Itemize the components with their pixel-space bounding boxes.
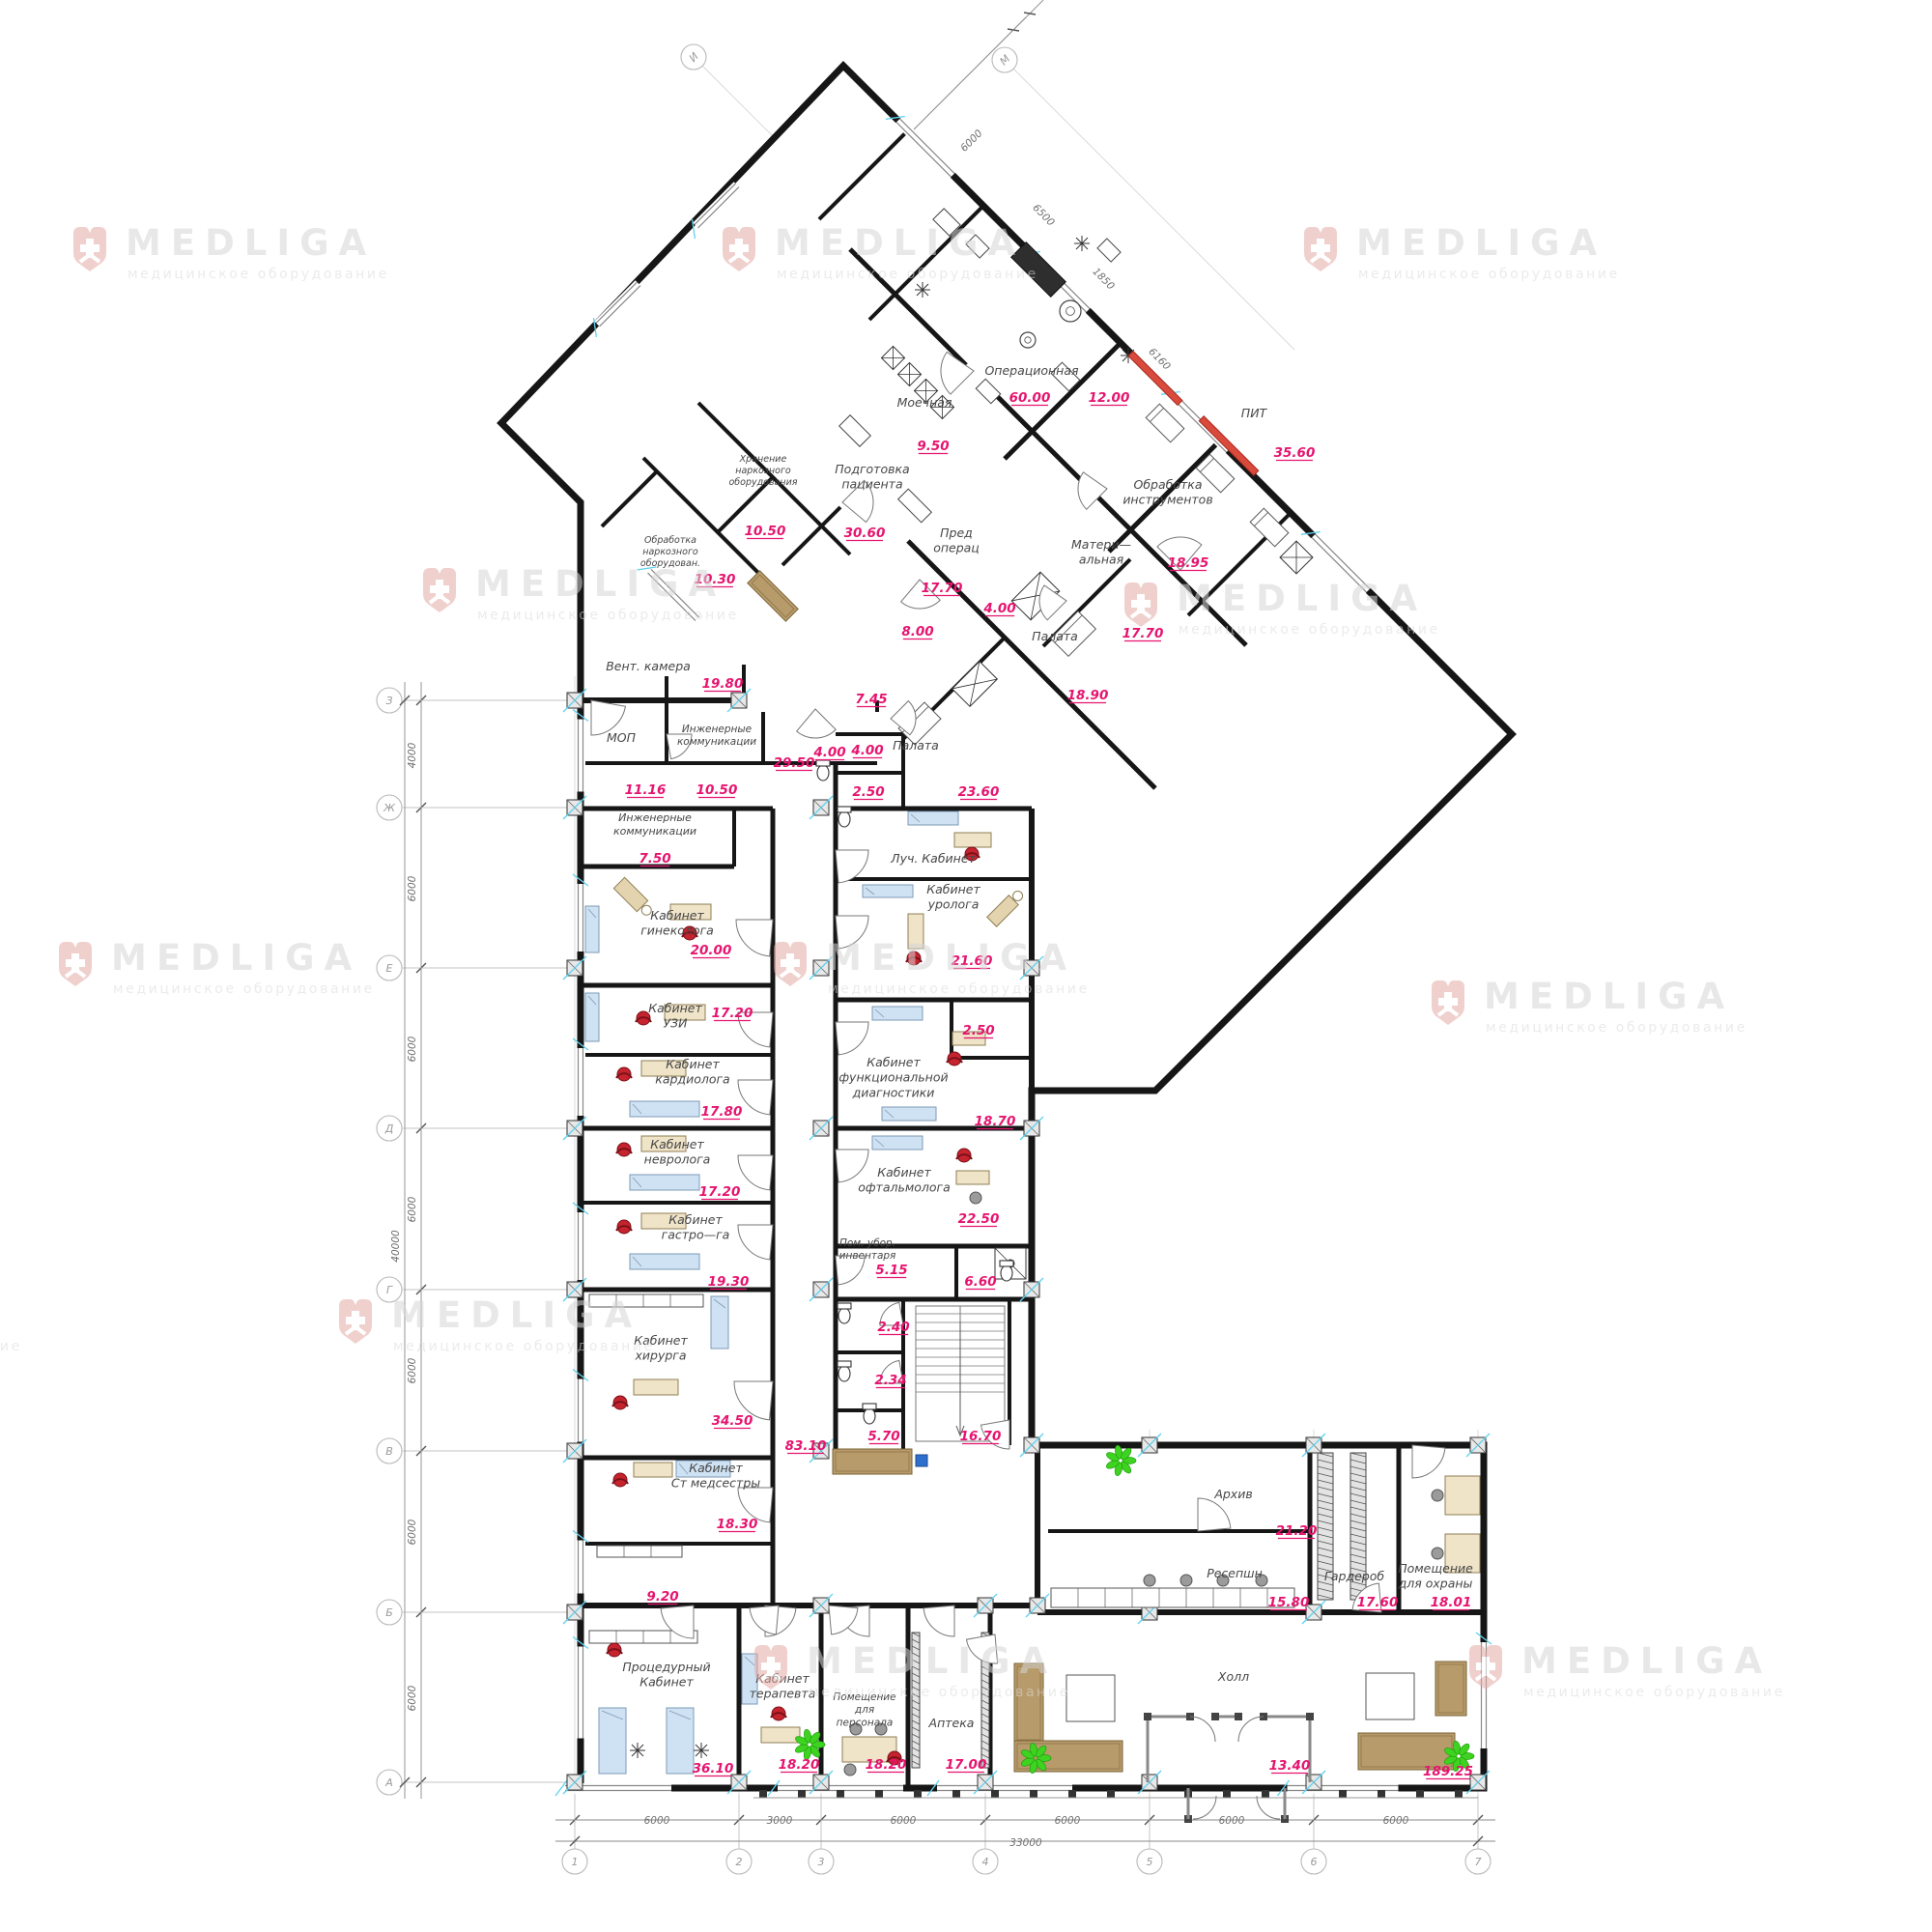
furniture-chair [956, 1149, 972, 1162]
room-area-value: 10.50 [745, 524, 786, 539]
svg-text:13.40: 13.40 [1269, 1758, 1311, 1774]
svg-text:17.70: 17.70 [1122, 626, 1164, 641]
room-area-value: 2.40 [877, 1320, 909, 1335]
furniture-counter [1051, 1588, 1294, 1607]
svg-text:7.50: 7.50 [639, 851, 670, 867]
column-pillar [563, 689, 586, 712]
svg-text:18.20: 18.20 [866, 1757, 907, 1773]
room-area-value: 11.16 [625, 782, 667, 798]
svg-text:17.70: 17.70 [922, 581, 963, 596]
furniture-couch [599, 1708, 626, 1774]
medliga-watermark: MEDLIGAмедицинское оборудование [0, 1294, 22, 1354]
room-label: Вент. камера [606, 659, 691, 673]
room-area-value: 4.00 [850, 743, 883, 758]
svg-text:17.80: 17.80 [701, 1104, 743, 1120]
room-label: Кабинетгастро—га [662, 1212, 730, 1242]
brand-name: MEDLIGA [391, 1294, 641, 1336]
svg-text:Д: Д [384, 1122, 394, 1135]
column-pillar [810, 796, 833, 819]
svg-text:34.50: 34.50 [712, 1413, 753, 1429]
furniture-couch [630, 1254, 699, 1269]
furniture-chair [612, 1396, 628, 1409]
dim-label: 40000 [390, 1230, 402, 1263]
brand-tagline: медицинское оборудование [1486, 1020, 1747, 1036]
dim-label: 33000 [1009, 1837, 1042, 1849]
dim-label: 6000 [407, 1036, 418, 1062]
porch-post [1455, 1790, 1463, 1798]
svg-text:9.50: 9.50 [917, 439, 949, 454]
furniture-table [1066, 1675, 1115, 1721]
svg-text:9.20: 9.20 [646, 1589, 678, 1605]
room-area-value: 30.60 [844, 526, 886, 541]
furniture-couch [711, 1296, 728, 1349]
medliga-watermark: MEDLIGAмедицинское оборудование [1432, 976, 1747, 1036]
svg-text:5.15: 5.15 [875, 1263, 907, 1278]
svg-text:А: А [384, 1776, 393, 1789]
room-area-value: 10.50 [696, 782, 738, 798]
medliga-watermark: MEDLIGAмедицинское оборудование [423, 563, 739, 623]
axis-circle-col-5: 5 [1137, 1849, 1162, 1874]
axis-circle-row-Ж: Ж [377, 795, 402, 820]
room-area-value: 7.50 [639, 851, 670, 867]
brand-name: MEDLIGA [1177, 578, 1427, 619]
svg-text:Матери—альная: Матери—альная [1071, 537, 1131, 567]
porch-post [1107, 1790, 1115, 1798]
brand-name: MEDLIGA [475, 563, 725, 605]
svg-text:5.70: 5.70 [867, 1429, 899, 1444]
furniture-desk [634, 1379, 678, 1395]
column-pillar [563, 1117, 586, 1140]
brand-tagline: медицинское оборудование [393, 1339, 655, 1354]
medliga-watermark: MEDLIGAмедицинское оборудование [1304, 222, 1620, 282]
room-area-value: 17.80 [701, 1104, 743, 1120]
dim-label: 6000 [891, 1815, 917, 1827]
furniture-desk [761, 1727, 800, 1743]
axis-circle-diag-М: М [992, 47, 1017, 72]
column-pillar [563, 1601, 586, 1624]
axis-circle-col-4: 4 [973, 1849, 998, 1874]
svg-text:5: 5 [1147, 1856, 1153, 1868]
svg-text:Кабинетгастро—га: Кабинетгастро—га [662, 1212, 730, 1242]
column-pillar [1138, 1771, 1161, 1794]
furniture-equip [1097, 239, 1121, 262]
svg-text:18.90: 18.90 [1067, 688, 1109, 703]
svg-text:Подготовкапациента: Подготовкапациента [835, 462, 909, 492]
brand-name: MEDLIGA [1356, 222, 1606, 264]
room-area-value: 189.25 [1423, 1764, 1473, 1779]
svg-text:Б: Б [385, 1606, 393, 1619]
axis-circle-col-2: 2 [726, 1849, 752, 1874]
room-label: Операционная [984, 363, 1079, 378]
room-label: Подготовкапациента [835, 462, 909, 492]
svg-text:189.25: 189.25 [1423, 1764, 1473, 1779]
room-area-value: 5.70 [867, 1429, 899, 1444]
room-area-value: 7.45 [855, 692, 887, 707]
room-area-value: 19.30 [708, 1274, 750, 1290]
room-area-value: 9.50 [917, 439, 949, 454]
svg-text:2.50: 2.50 [852, 784, 884, 800]
furniture-wc [838, 807, 851, 827]
room-area-value: 16.70 [960, 1429, 1002, 1444]
svg-text:36.10: 36.10 [693, 1761, 734, 1776]
room-area-value: 18.95 [1168, 555, 1209, 571]
room-area-value: 2.34 [874, 1373, 906, 1388]
axis-circle-row-З: З [377, 688, 402, 713]
column-pillar [810, 1771, 833, 1794]
room-area-value: 18.30 [717, 1517, 758, 1532]
dim-label: 6000 [407, 1685, 418, 1711]
column-pillar [974, 1594, 997, 1617]
room-label: ПИТ [1241, 406, 1268, 420]
svg-text:17.00: 17.00 [946, 1757, 987, 1773]
room-area-value: 12.00 [1089, 390, 1130, 406]
room-area-value: 20.00 [691, 943, 732, 958]
dim-label: 6000 [644, 1815, 670, 1827]
room-label: Аптека [928, 1716, 975, 1730]
svg-text:Кабинетуролога: Кабинетуролога [926, 882, 980, 912]
column-pillar [727, 689, 751, 712]
furniture-cross [1074, 236, 1090, 251]
dim-label: 6000 [1219, 1815, 1245, 1827]
dim-label: 6500 [1030, 202, 1057, 229]
svg-text:Инженерныекоммуникации: Инженерныекоммуникации [677, 724, 756, 748]
axis-circle-row-Б: Б [377, 1600, 402, 1625]
furniture-wc [863, 1404, 876, 1424]
svg-text:Кабинетневролога: Кабинетневролога [644, 1137, 711, 1167]
dim-label: 6000 [407, 1357, 418, 1383]
svg-text:20.00: 20.00 [691, 943, 732, 958]
dim-label: 6000 [958, 128, 985, 155]
column-pillar [563, 1439, 586, 1463]
furniture-wc [838, 1361, 851, 1381]
svg-text:3: 3 [818, 1856, 825, 1868]
svg-text:Пом. убор.инвентаря: Пом. убор.инвентаря [839, 1237, 896, 1262]
room-area-value: 35.60 [1274, 445, 1316, 461]
svg-text:Холл: Холл [1217, 1669, 1249, 1684]
column-pillar [1466, 1434, 1490, 1457]
furniture-chairg [844, 1764, 856, 1776]
dim-label: 6000 [1383, 1815, 1409, 1827]
svg-text:Гардероб: Гардероб [1324, 1569, 1384, 1583]
room-label: Пом. убор.инвентаря [839, 1237, 896, 1262]
svg-text:22.50: 22.50 [958, 1211, 1000, 1227]
axis-circle-col-1: 1 [562, 1849, 587, 1874]
furniture-cross [694, 1743, 709, 1758]
svg-text:8.00: 8.00 [901, 624, 933, 639]
room-label: Луч. Кабинет [890, 851, 976, 866]
room-area-value: 5.15 [875, 1263, 907, 1278]
brand-name: MEDLIGA [1521, 1640, 1772, 1682]
svg-text:18.30: 18.30 [717, 1517, 758, 1532]
room-label: Инженерныекоммуникации [677, 724, 756, 748]
room-label: Кабинетуролога [926, 882, 980, 912]
room-label: Палата [893, 738, 939, 753]
furniture-lamp [1020, 332, 1036, 348]
room-label: Помещениедля охраны [1398, 1561, 1474, 1591]
room-area-value: 19.80 [702, 676, 744, 692]
porch-post [798, 1790, 806, 1798]
dim-label: 6000 [407, 1196, 418, 1222]
svg-text:Операционная: Операционная [984, 363, 1079, 378]
porch-post [914, 1790, 922, 1798]
column-pillar [1026, 1594, 1049, 1617]
column-pillar [563, 956, 586, 980]
svg-text:18.95: 18.95 [1168, 555, 1209, 571]
furniture-chair [947, 1052, 962, 1065]
furniture-couch [872, 1136, 923, 1150]
furniture-chairg [1180, 1575, 1192, 1586]
svg-text:83.10: 83.10 [785, 1438, 827, 1454]
svg-text:21.20: 21.20 [1276, 1523, 1318, 1539]
brand-name: MEDLIGA [0, 1294, 9, 1336]
svg-text:19.80: 19.80 [702, 676, 744, 692]
porch-post [875, 1790, 883, 1798]
svg-text:17.60: 17.60 [1357, 1595, 1399, 1610]
porch-post [759, 1790, 767, 1798]
axis-circle-row-Д: Д [377, 1116, 402, 1141]
furniture-chairg [1432, 1548, 1443, 1559]
svg-text:18.01: 18.01 [1431, 1595, 1472, 1610]
floor-plan-page: 1234567ЗЖЕДГВБАИКЛМ 60003000600060006000… [0, 0, 1932, 1932]
floor-plan-canvas: 1234567ЗЖЕДГВБАИКЛМ 60003000600060006000… [0, 0, 1932, 1932]
svg-text:Моечная: Моечная [897, 395, 952, 410]
medliga-watermark: MEDLIGAмедицинское оборудование [339, 1294, 655, 1354]
svg-text:Инженерныекоммуникации: Инженерныекоммуникации [613, 811, 696, 838]
room-area-value: 83.10 [785, 1438, 827, 1454]
furniture-counter [597, 1546, 682, 1557]
svg-text:2.34: 2.34 [874, 1373, 906, 1388]
room-label: Инженерныекоммуникации [613, 811, 696, 838]
medliga-logo-icon [423, 568, 456, 612]
room-area-value: 2.50 [852, 784, 884, 800]
svg-text:18.70: 18.70 [975, 1114, 1016, 1129]
furniture-sofa [1435, 1662, 1466, 1716]
furniture-couch [585, 993, 599, 1041]
svg-text:4: 4 [982, 1856, 989, 1868]
svg-text:Палата: Палата [1032, 629, 1078, 643]
svg-text:МОП: МОП [607, 730, 637, 745]
svg-text:Ресепшн: Ресепшн [1207, 1566, 1263, 1580]
room-area-value: 18.70 [975, 1114, 1016, 1129]
column-pillar [1138, 1434, 1161, 1457]
furniture-desk [956, 1171, 989, 1184]
brand-name: MEDLIGA [775, 222, 1025, 264]
medliga-logo-icon [1432, 980, 1464, 1025]
porch-post [1030, 1790, 1037, 1798]
room-area-value: 22.50 [958, 1211, 1000, 1227]
svg-text:15.80: 15.80 [1268, 1595, 1310, 1610]
room-area-value: 17.70 [1122, 626, 1164, 641]
furniture-chairg [970, 1192, 981, 1204]
column-pillar [810, 1278, 833, 1301]
room-label: Ресепшн [1207, 1566, 1263, 1580]
furniture-chair [616, 1220, 632, 1234]
room-area-value: 18.20 [779, 1757, 820, 1773]
room-area-value: 21.20 [1276, 1523, 1318, 1539]
porch-post [952, 1790, 960, 1798]
brand-tagline: медицинское оборудование [477, 608, 739, 623]
furniture-lamp [1060, 300, 1081, 322]
room-area-value: 4.00 [812, 745, 845, 760]
room-label: Кабинетгинеколога [640, 908, 714, 938]
room-area-value: 17.20 [699, 1184, 741, 1200]
column-pillar [1020, 1434, 1043, 1457]
room-label: Моечная [897, 395, 952, 410]
room-label: Кабинетневролога [644, 1137, 711, 1167]
room-label: Обработкаинструментов [1122, 477, 1212, 507]
brand-tagline: медицинское оборудование [809, 1685, 1070, 1700]
column-pillar [1020, 1117, 1043, 1140]
medliga-logo-icon [1304, 227, 1337, 271]
furniture-couch [630, 1175, 699, 1190]
column-pillar [1302, 1771, 1325, 1794]
room-area-value: 18.20 [866, 1757, 907, 1773]
room-area-value: 36.10 [693, 1761, 734, 1776]
room-label: Предоперац [933, 526, 980, 555]
svg-text:Ж: Ж [383, 802, 396, 814]
furniture-chair [607, 1643, 622, 1657]
furniture-couch [882, 1107, 936, 1121]
room-area-value: 8.00 [901, 624, 933, 639]
brand-tagline: медицинское оборудование [1523, 1685, 1785, 1700]
svg-text:З: З [385, 695, 392, 707]
room-area-value: 17.00 [946, 1757, 987, 1773]
porch-post [1416, 1790, 1424, 1798]
svg-text:12.00: 12.00 [1089, 390, 1130, 406]
medliga-logo-icon [59, 942, 92, 986]
svg-text:23.60: 23.60 [958, 784, 1000, 800]
dim-label: 3000 [767, 1815, 793, 1827]
svg-text:Кабинеткардиолога: Кабинеткардиолога [655, 1057, 729, 1087]
svg-text:2.40: 2.40 [877, 1320, 909, 1335]
room-label: Холл [1217, 1669, 1249, 1684]
column-pillar [563, 796, 586, 819]
furniture-chair [616, 1143, 632, 1156]
svg-text:19.30: 19.30 [708, 1274, 750, 1290]
axis-circle-row-В: В [377, 1438, 402, 1463]
svg-text:6: 6 [1311, 1856, 1318, 1868]
svg-text:2.50: 2.50 [962, 1023, 994, 1038]
svg-text:7.45: 7.45 [855, 692, 887, 707]
furniture-couch [667, 1708, 694, 1774]
furniture-couch [872, 1007, 923, 1020]
svg-text:Архив: Архив [1213, 1487, 1252, 1501]
brand-tagline: медицинское оборудование [1179, 622, 1440, 638]
porch-post [1068, 1790, 1076, 1798]
axis-circle-col-3: 3 [809, 1849, 834, 1874]
svg-text:16.70: 16.70 [960, 1429, 1002, 1444]
svg-text:11.16: 11.16 [625, 782, 667, 798]
axis-circle-row-А: А [377, 1770, 402, 1795]
room-area-value: 17.20 [712, 1006, 753, 1021]
room-label: Матери—альная [1071, 537, 1131, 567]
svg-text:10.50: 10.50 [696, 782, 738, 798]
svg-text:29.50: 29.50 [774, 755, 815, 771]
column-pillar [563, 1771, 586, 1794]
furniture-couch [863, 885, 913, 897]
furniture-chairg [1432, 1490, 1443, 1501]
medliga-logo-icon [339, 1299, 372, 1344]
svg-text:Аптека: Аптека [928, 1716, 975, 1730]
room-area-value: 60.00 [1009, 390, 1051, 406]
svg-text:2: 2 [736, 1856, 743, 1868]
medliga-logo-icon [73, 227, 106, 271]
furniture-chair [612, 1473, 628, 1487]
dim-label: 6000 [1055, 1815, 1081, 1827]
furniture-couch [585, 906, 599, 952]
porch-post [1378, 1790, 1385, 1798]
furniture-chair [616, 1067, 632, 1081]
brand-name: MEDLIGA [1484, 976, 1734, 1017]
furniture-wc [1000, 1261, 1013, 1281]
furniture-desk [634, 1463, 672, 1477]
svg-text:Вент. камера: Вент. камера [606, 659, 691, 673]
room-area-value: 18.90 [1067, 688, 1109, 703]
room-area-value: 13.40 [1269, 1758, 1311, 1774]
axis-circle-diag-И: И [681, 44, 706, 70]
brand-tagline: медицинское оборудование [0, 1339, 22, 1354]
room-area-value: 2.50 [962, 1023, 994, 1038]
svg-text:Кабинетгинеколога: Кабинетгинеколога [640, 908, 714, 938]
svg-text:Палата: Палата [893, 738, 939, 753]
room-label: Архив [1213, 1487, 1252, 1501]
furniture-chairg [1144, 1575, 1155, 1586]
porch-post [991, 1790, 999, 1798]
brand-name: MEDLIGA [126, 222, 376, 264]
porch-post [1339, 1790, 1347, 1798]
axis-circle-col-7: 7 [1465, 1849, 1491, 1874]
furniture-couch [908, 811, 958, 825]
porch-post [1262, 1790, 1269, 1798]
room-area-value: 29.50 [774, 755, 815, 771]
svg-text:Обработкаинструментов: Обработкаинструментов [1122, 477, 1212, 507]
room-area-value: 17.60 [1357, 1595, 1399, 1610]
room-label: Палата [1032, 629, 1078, 643]
brand-tagline: медицинское оборудование [828, 981, 1090, 997]
dim-label: 6000 [407, 875, 418, 901]
medliga-watermark: MEDLIGAмедицинское оборудование [73, 222, 389, 282]
room-label: Гардероб [1324, 1569, 1384, 1583]
brand-name: MEDLIGA [111, 937, 361, 979]
svg-text:ПИТ: ПИТ [1241, 406, 1268, 420]
svg-text:35.60: 35.60 [1274, 445, 1316, 461]
medliga-watermark: MEDLIGAмедицинское оборудование [1469, 1640, 1785, 1700]
svg-text:6.60: 6.60 [964, 1274, 996, 1290]
svg-text:60.00: 60.00 [1009, 390, 1051, 406]
room-area-value: 17.70 [922, 581, 963, 596]
furniture-tableb [1445, 1476, 1480, 1515]
brand-tagline: медицинское оборудование [113, 981, 375, 997]
porch-post [1223, 1790, 1231, 1798]
svg-text:Луч. Кабинет: Луч. Кабинет [890, 851, 976, 866]
porch-post [837, 1790, 844, 1798]
furniture-couch [630, 1101, 699, 1117]
brand-name: MEDLIGA [826, 937, 1076, 979]
furniture-desk [954, 833, 991, 847]
room-label: МОП [607, 730, 637, 745]
furniture-wc [838, 1303, 851, 1323]
brand-tagline: медицинское оборудование [128, 267, 389, 282]
room-area-value: 4.00 [982, 601, 1015, 616]
furniture-wc [816, 760, 830, 781]
dim-label: 1850 [1090, 266, 1117, 293]
room-label: Кабинеткардиолога [655, 1057, 729, 1087]
room-area-value: 34.50 [712, 1413, 753, 1429]
svg-text:Помещениедля охраны: Помещениедля охраны [1398, 1561, 1474, 1591]
svg-text:18.20: 18.20 [779, 1757, 820, 1773]
svg-text:30.60: 30.60 [844, 526, 886, 541]
room-area-value: 15.80 [1268, 1595, 1310, 1610]
